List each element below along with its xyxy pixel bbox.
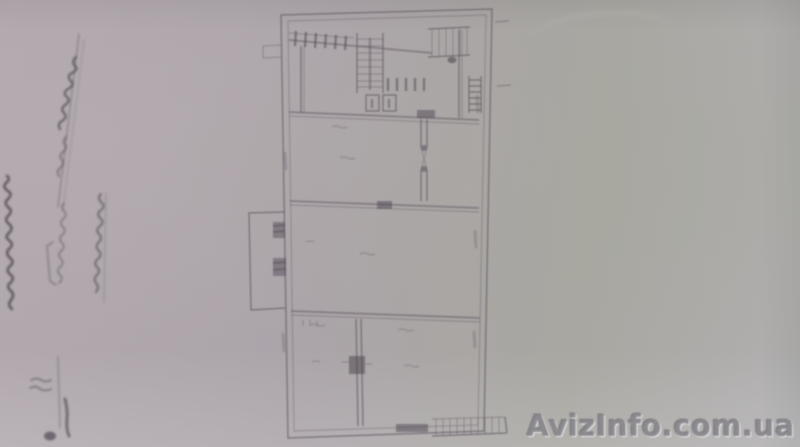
interior-wall-mid-with-door [421, 119, 427, 201]
stair-flight-main [357, 33, 383, 93]
divider-wall-3 [291, 311, 480, 327]
divider-wall-2 [290, 201, 479, 212]
watermark: AvizInfo.com.ua [527, 409, 795, 443]
handwritten-note-bottom [30, 357, 69, 441]
photographed-floorplan-document: AvizInfo.com.ua [0, 0, 800, 447]
handwritten-note-scale [95, 193, 106, 302]
handwritten-note-upper [47, 34, 84, 285]
floorplan-drawing [0, 0, 800, 447]
radiator-ticks [388, 78, 424, 91]
annex-door-hatch [273, 222, 286, 276]
cabinet-squares [366, 95, 396, 111]
dimension-dashes [495, 21, 511, 86]
interior-wall-top-left [301, 46, 304, 113]
divider-wall-1 [289, 110, 479, 124]
interior-wall-right-top [459, 30, 462, 118]
stair-flight-upper [428, 27, 470, 63]
wall-shading-marks [283, 95, 478, 352]
room-label-marks [306, 126, 419, 367]
bottom-door [342, 356, 372, 374]
wall-ladder [469, 76, 481, 113]
window-hatch-top [289, 31, 432, 53]
vent-stub [263, 45, 281, 58]
outer-wall [281, 9, 492, 438]
handwritten-note-left-column [4, 176, 13, 309]
